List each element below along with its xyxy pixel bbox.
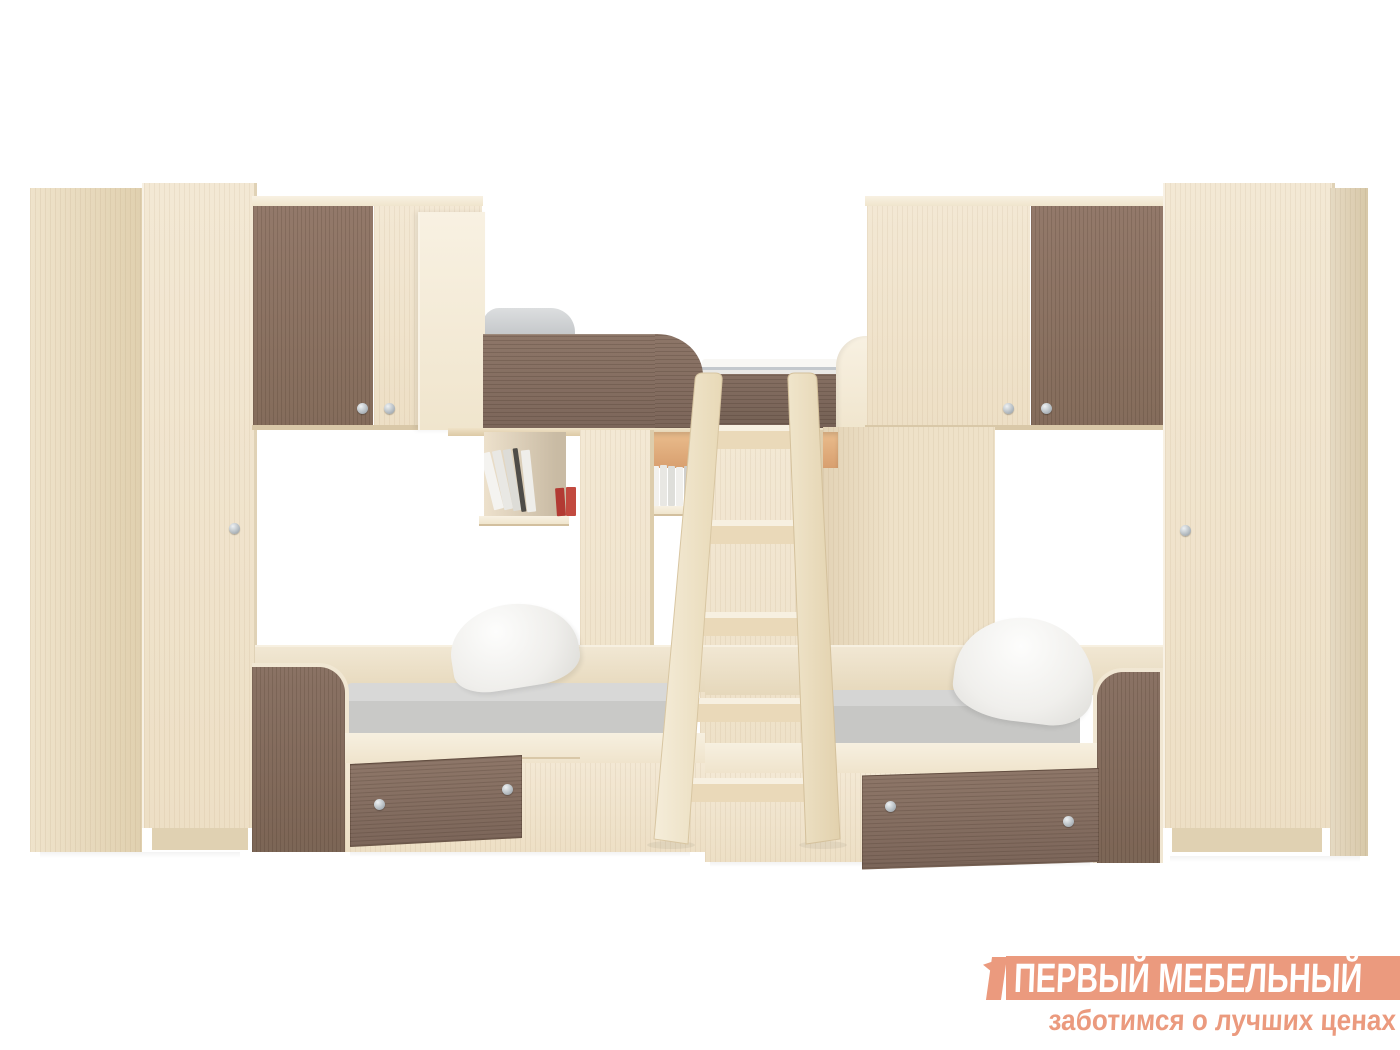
right-overhead-cabinet-top xyxy=(865,196,1164,206)
shelf-compartment-left xyxy=(484,432,566,518)
floor-shadow xyxy=(710,862,1090,867)
right-cabinet-knob-dark-door xyxy=(1041,403,1052,414)
left-bed-base-seam xyxy=(522,757,580,759)
right-wardrobe-door xyxy=(1163,183,1335,828)
left-wardrobe-plinth xyxy=(152,828,248,850)
left-cabinet-knob-light-door xyxy=(384,403,395,414)
left-wardrobe-door xyxy=(142,183,257,828)
left-drawer-knob xyxy=(374,799,385,810)
left-bed-mattress xyxy=(347,683,683,733)
book xyxy=(668,466,675,506)
shelf-board-left xyxy=(479,516,569,526)
right-overhead-cabinet-door-light xyxy=(867,206,1030,427)
left-overhead-cabinet-door-dark xyxy=(253,206,373,427)
left-bed-headboard xyxy=(252,667,345,852)
left-drawer-knob xyxy=(502,784,513,795)
book-red xyxy=(566,487,576,516)
floor-shadow xyxy=(350,852,690,857)
product-photo-stage: ПЕРВЫЙ МЕБЕЛЬНЫЙ заботимся о лучших цена… xyxy=(0,0,1400,1050)
right-wardrobe-side-panel xyxy=(1330,188,1368,856)
upper-guard-rail-curve xyxy=(655,334,703,428)
book-red xyxy=(555,488,566,517)
upper-guard-rail-low xyxy=(698,374,840,428)
watermark-banner: ПЕРВЫЙ МЕБЕЛЬНЫЙ xyxy=(1006,956,1400,1000)
left-wardrobe-side-panel xyxy=(30,188,142,852)
shelf-compartment-right-books xyxy=(652,464,698,506)
right-drawer-knob xyxy=(1063,816,1074,827)
right-wardrobe-knob xyxy=(1180,525,1191,536)
book xyxy=(676,467,683,506)
right-cabinet-knob-light-door xyxy=(1003,403,1014,414)
floor-shadow xyxy=(40,852,240,858)
floor-shadow xyxy=(1170,856,1360,862)
left-overhead-cabinet-top xyxy=(252,196,483,206)
left-bed-rim xyxy=(345,733,705,765)
upper-bunk-headboard-panel xyxy=(418,212,485,430)
right-wardrobe-plinth xyxy=(1172,828,1322,852)
upper-guard-rail xyxy=(483,334,658,429)
left-wardrobe-knob xyxy=(229,523,240,534)
watermark-tagline: заботимся о лучших ценах xyxy=(1010,1004,1390,1038)
watermark-brand-text: ПЕРВЫЙ МЕБЕЛЬНЫЙ xyxy=(1013,956,1363,1000)
right-overhead-cabinet-door-dark xyxy=(1031,206,1163,427)
book xyxy=(660,465,667,506)
right-drawer-knob xyxy=(885,801,896,812)
book xyxy=(684,466,691,506)
left-cabinet-knob-dark-door xyxy=(357,403,368,414)
right-bed-footboard xyxy=(1097,672,1160,863)
corner-back-panel xyxy=(823,427,995,650)
watermark-tagline-text: заботимся о лучших ценах xyxy=(1048,1004,1397,1038)
